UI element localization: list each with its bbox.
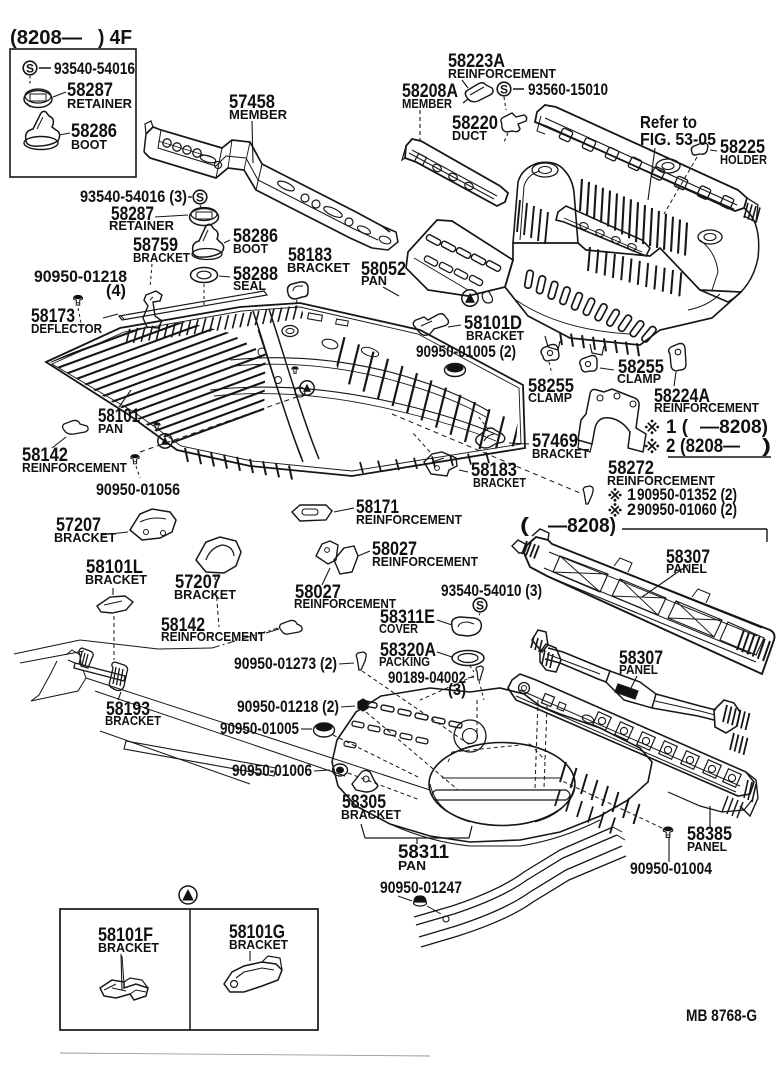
svg-text:1 (: 1 (	[666, 417, 689, 438]
svg-text:RETAINER: RETAINER	[67, 96, 133, 111]
svg-text:S: S	[26, 61, 34, 75]
svg-text:REINFORCEMENT: REINFORCEMENT	[654, 400, 759, 415]
svg-text:BRACKET: BRACKET	[174, 587, 236, 602]
svg-text:90950-01004: 90950-01004	[630, 860, 713, 878]
svg-text:90950-01005: 90950-01005	[220, 720, 299, 738]
svg-text:BRACKET: BRACKET	[85, 572, 147, 587]
svg-text:90950-01056: 90950-01056	[96, 481, 180, 499]
svg-text:90950-01247: 90950-01247	[380, 879, 462, 897]
svg-text:PAN: PAN	[398, 858, 426, 873]
svg-text:CLAMP: CLAMP	[528, 390, 572, 405]
svg-text:PAN: PAN	[98, 421, 123, 436]
svg-text:90950-01006: 90950-01006	[232, 762, 312, 780]
svg-text:93540-54016: 93540-54016	[54, 60, 135, 78]
svg-text:(8208—: (8208—	[10, 27, 82, 49]
svg-text:BRACKET: BRACKET	[341, 807, 401, 822]
svg-text:MEMBER: MEMBER	[229, 107, 288, 122]
svg-text:CLAMP: CLAMP	[617, 371, 661, 386]
svg-text:PAN: PAN	[361, 273, 387, 288]
svg-text:(4): (4)	[106, 282, 126, 300]
svg-text:MEMBER: MEMBER	[402, 96, 453, 111]
svg-text:BRACKET: BRACKET	[466, 328, 524, 343]
svg-text:SEAL: SEAL	[233, 278, 266, 293]
svg-text:—8208): —8208)	[700, 417, 768, 438]
svg-text:BRACKET: BRACKET	[133, 250, 190, 265]
svg-text:COVER: COVER	[379, 621, 419, 636]
svg-text:DEFLECTOR: DEFLECTOR	[31, 321, 103, 336]
svg-text:2 (8208—: 2 (8208—	[666, 436, 740, 457]
svg-text:BOOT: BOOT	[71, 137, 107, 152]
svg-text:REINFORCEMENT: REINFORCEMENT	[22, 460, 127, 475]
svg-text:—8208): —8208)	[548, 515, 616, 537]
svg-text:PANEL: PANEL	[687, 839, 727, 854]
svg-text:93560-15010: 93560-15010	[528, 81, 608, 99]
svg-text:90950-01273 (2): 90950-01273 (2)	[234, 655, 337, 673]
svg-text:): )	[762, 436, 771, 457]
svg-text:93540-54010 (3): 93540-54010 (3)	[441, 582, 542, 600]
svg-text:S: S	[476, 598, 484, 612]
svg-text:90950-01060 (2): 90950-01060 (2)	[637, 501, 737, 519]
svg-text:S: S	[196, 190, 204, 204]
svg-text:BRACKET: BRACKET	[229, 937, 288, 952]
svg-text:S: S	[500, 82, 508, 96]
svg-text:HOLDER: HOLDER	[720, 152, 768, 167]
svg-text:FIG. 53-05: FIG. 53-05	[640, 129, 716, 149]
svg-text:BRACKET: BRACKET	[54, 530, 116, 545]
svg-text:BOOT: BOOT	[233, 241, 268, 256]
svg-text:2: 2	[627, 501, 636, 519]
svg-text:BRACKET: BRACKET	[105, 713, 161, 728]
svg-text:REINFORCEMENT: REINFORCEMENT	[372, 554, 478, 569]
svg-text:REINFORCEMENT: REINFORCEMENT	[161, 629, 265, 644]
svg-text:(: (	[520, 515, 529, 537]
svg-text:) 4F: ) 4F	[98, 27, 132, 49]
svg-text:PANEL: PANEL	[666, 561, 707, 576]
svg-text:PANEL: PANEL	[619, 662, 658, 677]
svg-text:90950-01005 (2): 90950-01005 (2)	[416, 343, 516, 361]
svg-text:MB 8768-G: MB 8768-G	[686, 1007, 757, 1025]
svg-text:BRACKET: BRACKET	[473, 475, 526, 490]
svg-text:BRACKET: BRACKET	[98, 940, 159, 955]
svg-text:90950-01218 (2): 90950-01218 (2)	[237, 698, 339, 716]
svg-text:RETAINER: RETAINER	[109, 218, 175, 233]
svg-text:REINFORCEMENT: REINFORCEMENT	[356, 512, 462, 527]
svg-text:PACKING: PACKING	[379, 654, 430, 669]
svg-text:BRACKET: BRACKET	[287, 260, 350, 275]
svg-text:REINFORCEMENT: REINFORCEMENT	[448, 66, 556, 81]
svg-text:DUCT: DUCT	[452, 128, 487, 143]
